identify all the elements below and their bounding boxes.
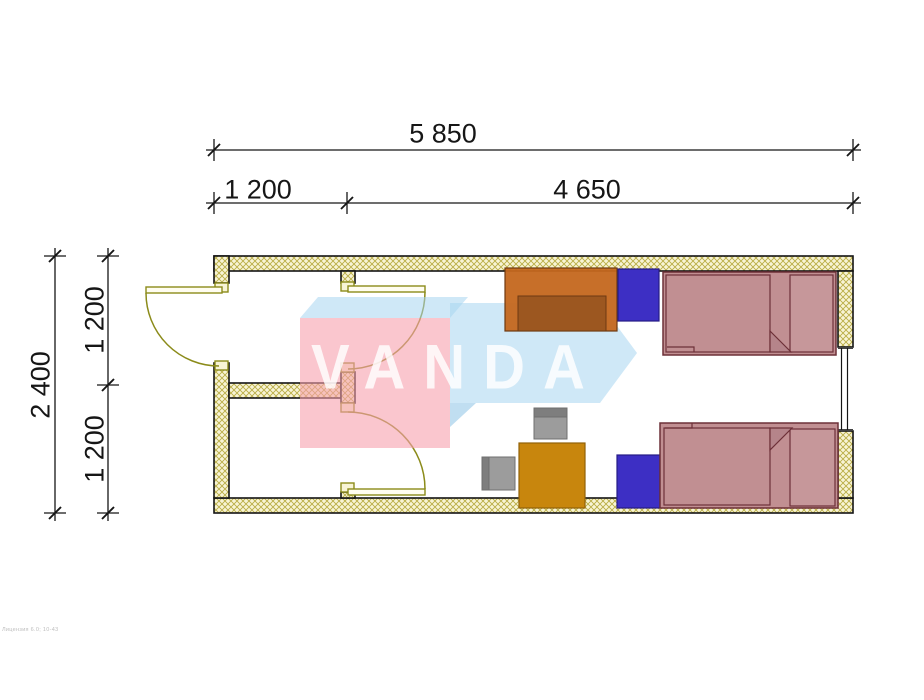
chair-left bbox=[482, 457, 515, 490]
dim-label-top-segment-left: 1 200 bbox=[224, 177, 292, 204]
dim-label-top-total: 5 850 bbox=[409, 121, 477, 148]
nightstand-bottom bbox=[617, 455, 660, 508]
chair-left-backrest bbox=[482, 457, 489, 490]
chair-top-backrest bbox=[534, 408, 567, 417]
chair-top bbox=[534, 408, 567, 439]
bed-top bbox=[663, 272, 836, 355]
nightstand-top bbox=[618, 269, 659, 321]
bed-bottom bbox=[660, 423, 838, 508]
floor-plan-canvas: VANDA bbox=[0, 0, 924, 700]
dim-label-left-room-lower: 1 200 bbox=[82, 415, 109, 483]
wardrobe bbox=[505, 268, 617, 331]
dim-label-top-segment-right: 4 650 bbox=[553, 177, 621, 204]
bed-top-pillow bbox=[790, 275, 833, 352]
dim-label-left-room-upper: 1 200 bbox=[82, 286, 109, 354]
desk bbox=[519, 443, 585, 508]
footer-note: Лицензия 6.0; 10-43 bbox=[2, 627, 58, 633]
bed-bottom-pillow bbox=[790, 429, 835, 506]
dim-label-left-total: 2 400 bbox=[28, 351, 55, 419]
plan-furniture-drawing bbox=[0, 0, 924, 700]
